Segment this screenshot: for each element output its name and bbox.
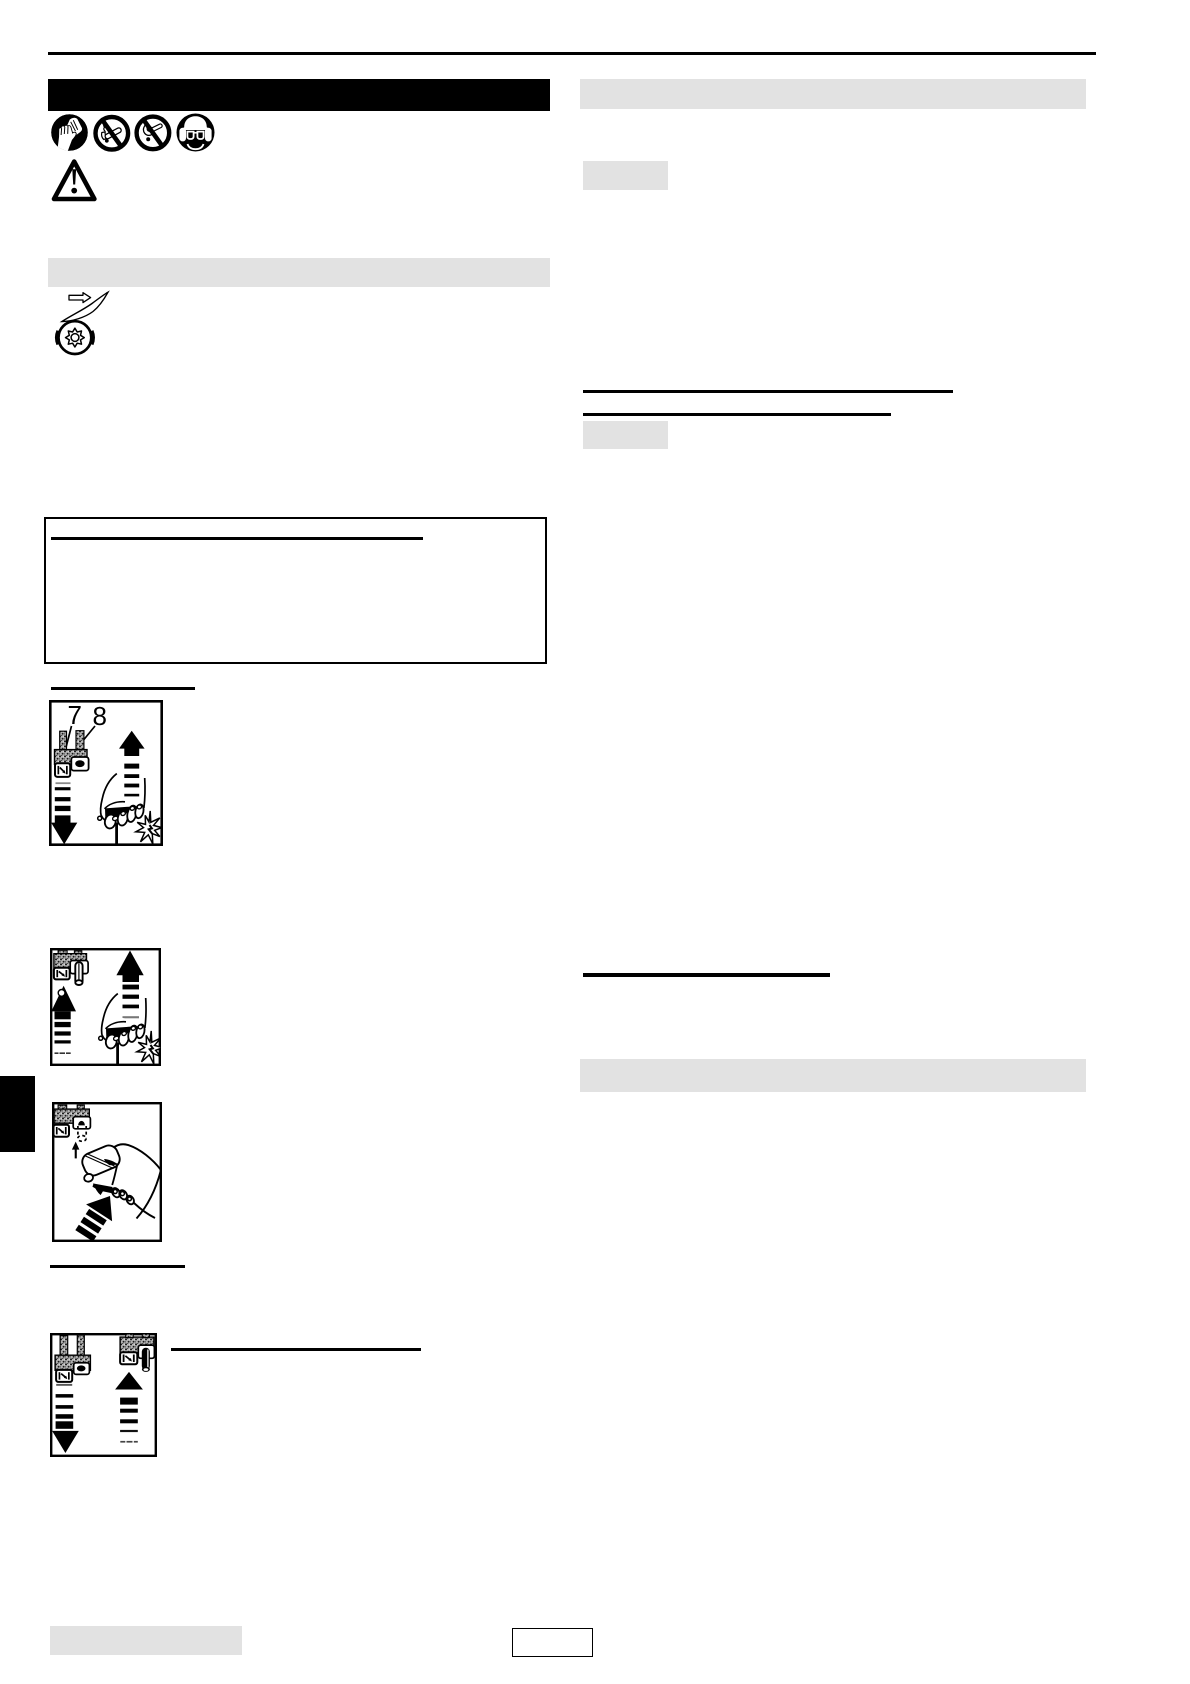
svg-text:7: 7: [68, 700, 82, 730]
